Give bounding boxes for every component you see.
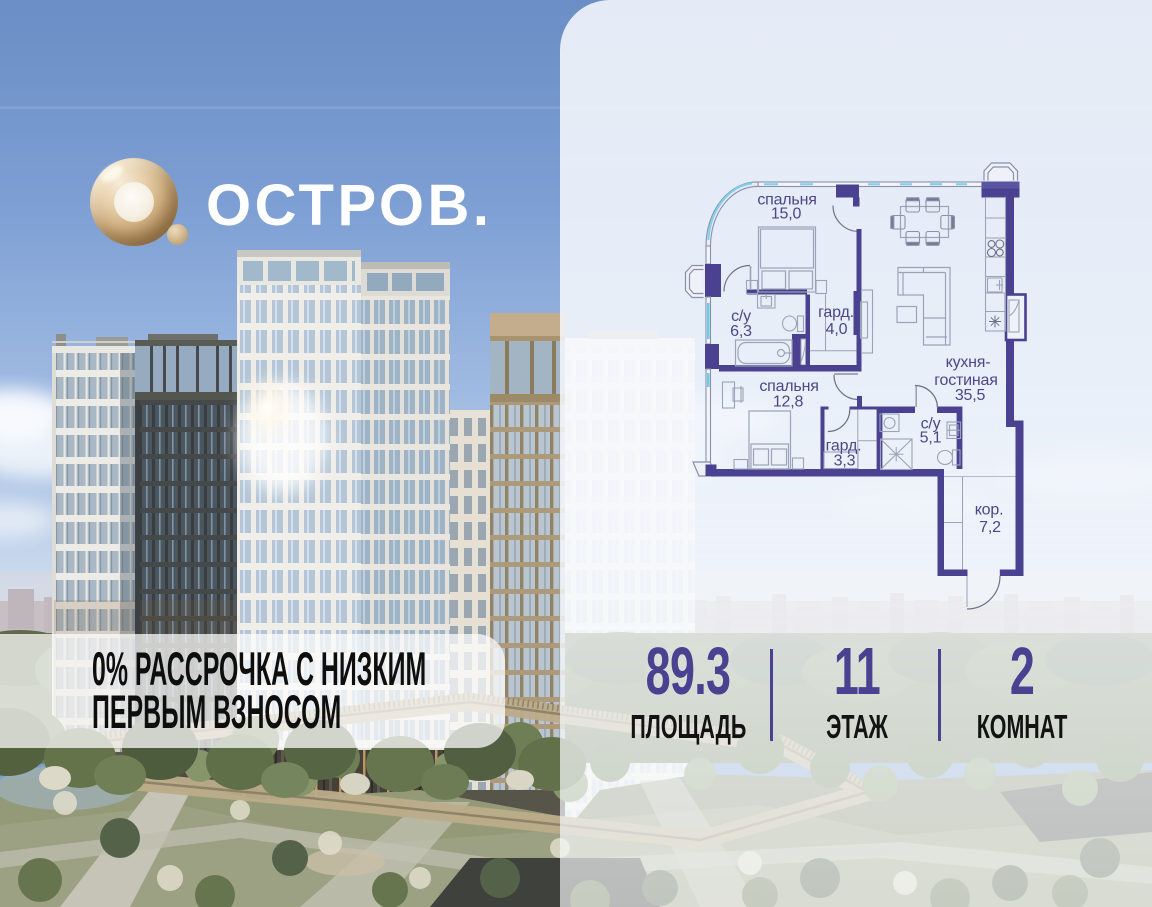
svg-text:кухня-: кухня- <box>946 354 991 371</box>
svg-text:3,3: 3,3 <box>834 453 856 470</box>
svg-text:6,3: 6,3 <box>730 323 752 340</box>
svg-text:7,2: 7,2 <box>979 519 1001 536</box>
svg-text:спальня: спальня <box>759 378 818 395</box>
svg-text:35,5: 35,5 <box>955 387 986 404</box>
svg-text:гард.: гард. <box>818 304 854 321</box>
svg-text:кор.: кор. <box>975 502 1004 519</box>
svg-text:4,0: 4,0 <box>826 321 848 338</box>
svg-text:12,8: 12,8 <box>773 394 804 411</box>
svg-text:15,0: 15,0 <box>771 206 802 223</box>
svg-text:5,1: 5,1 <box>920 430 942 447</box>
